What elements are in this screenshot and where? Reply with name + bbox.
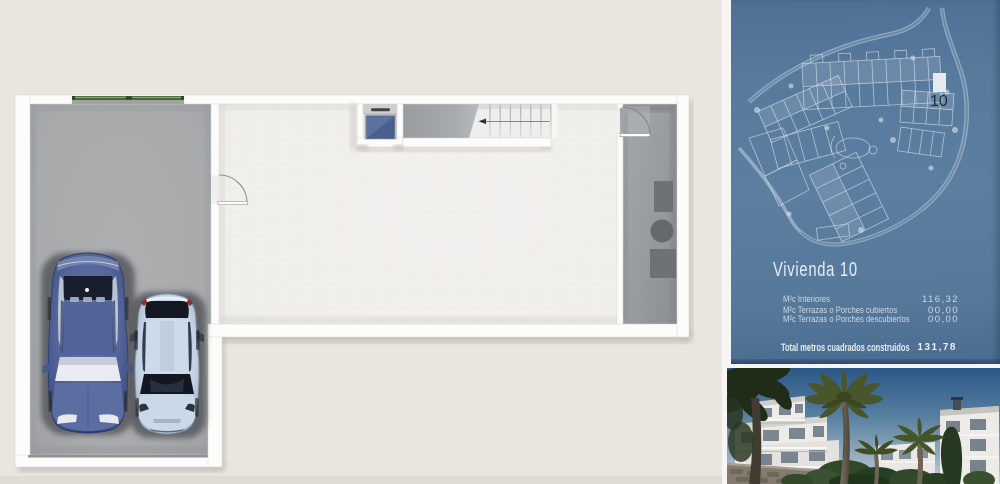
svg-text:10: 10 xyxy=(930,93,948,110)
